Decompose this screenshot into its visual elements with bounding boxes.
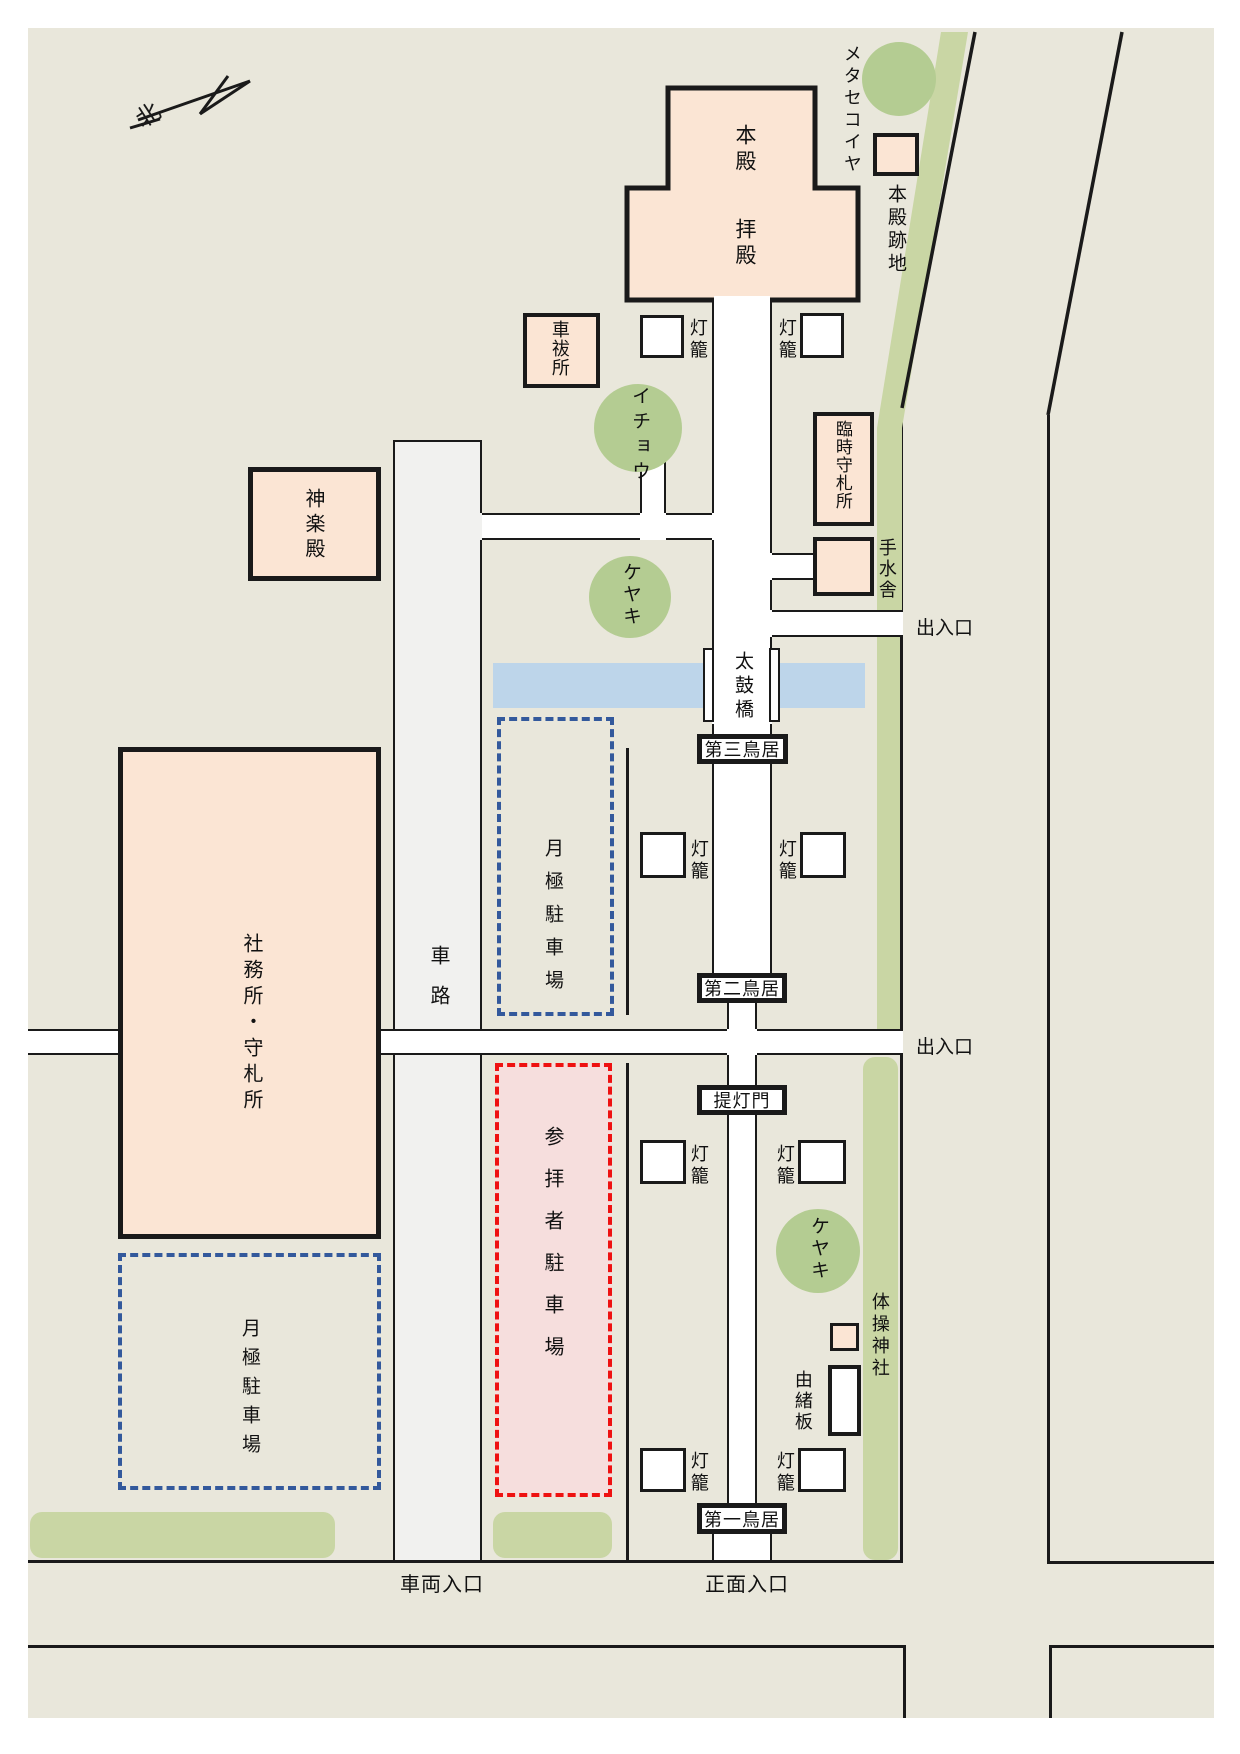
vehicle-entrance-label: 車両入口 <box>400 1568 484 1597</box>
third-torii-label: 第三鳥居 <box>705 736 781 762</box>
lantern-d-right-label: 灯籠 <box>775 1451 794 1495</box>
third-torii-gate: 第三鳥居 <box>697 734 788 764</box>
zelkova-lower-label: ケヤキ <box>808 1216 828 1282</box>
shrine-grounds-map: 北 第三鳥居 第二鳥居 提灯門 第一鳥居 本殿 拝殿 メタセコイヤ 本殿跡地 車… <box>0 0 1240 1754</box>
lantern-c-right <box>798 1140 846 1184</box>
kagura-hall-label: 神楽殿 <box>302 488 323 563</box>
temizuya-label: 手水舎 <box>877 538 896 601</box>
second-torii-gate: 第二鳥居 <box>697 973 787 1003</box>
history-board-label: 由緒板 <box>793 1370 812 1433</box>
taiso-shrine-building <box>830 1323 859 1351</box>
first-torii-label: 第一鳥居 <box>704 1506 780 1532</box>
first-torii-gate: 第一鳥居 <box>697 1503 787 1534</box>
lantern-gate: 提灯門 <box>697 1085 787 1115</box>
temizuya-building <box>813 537 874 596</box>
honden-site-building <box>873 133 919 176</box>
lantern-gate-label: 提灯門 <box>714 1087 771 1113</box>
lantern-a-left <box>640 315 684 358</box>
history-board <box>828 1365 861 1436</box>
lantern-d-right <box>798 1448 846 1492</box>
east-exit-lower-label: 出入口 <box>916 1032 973 1059</box>
main-entrance-label: 正面入口 <box>705 1568 789 1597</box>
temp-amulet-office-label: 臨時守札所 <box>833 420 851 510</box>
lantern-b-right-label: 灯籠 <box>777 839 796 883</box>
visitor-parking-label: 参拝者駐車場 <box>541 1126 562 1378</box>
lantern-b-right <box>800 832 846 878</box>
metasequoia-tree <box>862 42 936 116</box>
haiden-label: 拝殿 <box>733 218 755 270</box>
lantern-c-right-label: 灯籠 <box>775 1144 794 1188</box>
car-purification-label: 車祓所 <box>550 320 569 377</box>
taiko-bridge-label: 太鼓橋 <box>732 651 752 723</box>
north-arrow-label: 北 <box>131 98 166 134</box>
taiso-shrine-label: 体操神社 <box>870 1292 889 1380</box>
lantern-a-left-label: 灯籠 <box>688 318 707 362</box>
metasequoia-label: メタセコイヤ <box>842 44 861 176</box>
east-road-far-diagonal <box>1048 32 1122 415</box>
lantern-a-right-label: 灯籠 <box>777 318 796 362</box>
lantern-d-left <box>640 1448 686 1492</box>
east-exit-upper-label: 出入口 <box>916 613 973 640</box>
zelkova-upper-label: ケヤキ <box>620 562 640 628</box>
lantern-b-left-label: 灯籠 <box>689 839 708 883</box>
drive-lane-label: 車路 <box>427 945 448 1025</box>
monthly-parking-upper-label: 月極駐車場 <box>542 838 562 1003</box>
monthly-parking-lower-label: 月極駐車場 <box>239 1318 259 1463</box>
tree-belt-east-upper <box>877 32 968 610</box>
lantern-b-left <box>640 832 686 878</box>
lantern-c-left-label: 灯籠 <box>689 1144 708 1188</box>
ginkgo-label: イチョウ <box>629 386 649 486</box>
lantern-c-left <box>640 1140 686 1184</box>
lantern-a-right <box>800 313 844 358</box>
honden-label: 本殿 <box>733 124 755 176</box>
honden-site-label: 本殿跡地 <box>885 184 905 276</box>
second-torii-label: 第二鳥居 <box>704 975 780 1001</box>
shrine-office-label: 社務所・守札所 <box>240 933 261 1115</box>
main-hall-path-opening <box>714 296 770 304</box>
lantern-d-left-label: 灯籠 <box>689 1451 708 1495</box>
